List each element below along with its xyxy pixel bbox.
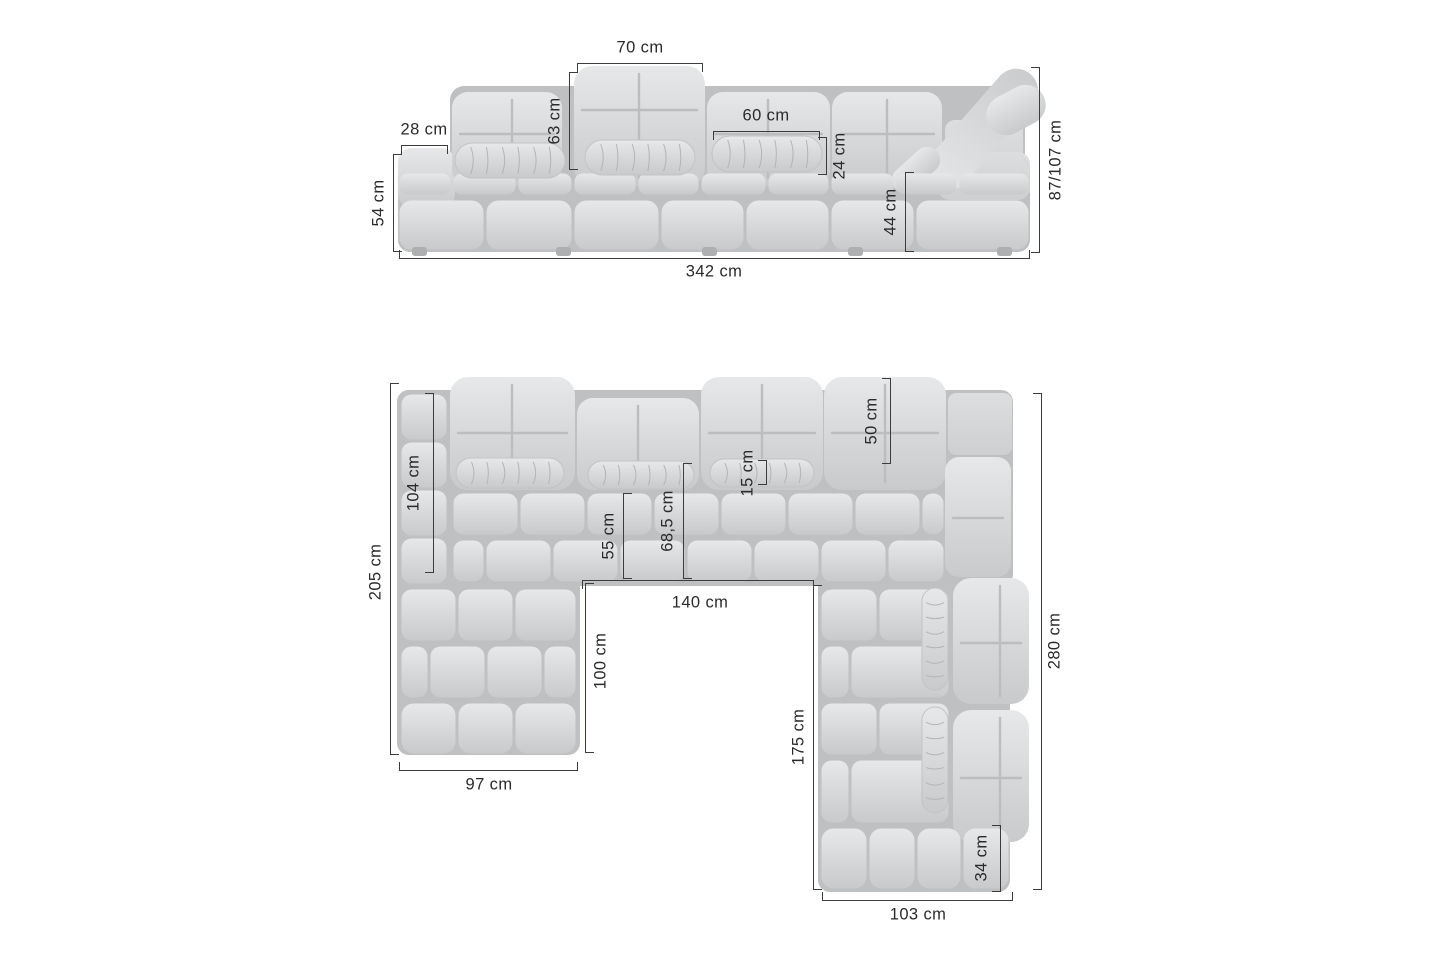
label-seat-depth-with-bolster: 68,5 cm bbox=[659, 490, 678, 552]
label-left-chaise-width: 97 cm bbox=[466, 776, 513, 795]
bracket-total-height bbox=[1031, 67, 1040, 253]
label-inner-left-length: 100 cm bbox=[592, 633, 611, 690]
label-left-backrest-depth: 104 cm bbox=[405, 455, 424, 512]
label-corner-end-depth: 34 cm bbox=[973, 835, 992, 882]
bracket-left-side-length bbox=[390, 383, 399, 755]
label-total-height: 87/107 cm bbox=[1047, 120, 1066, 201]
bracket-right-backrest-depth bbox=[882, 378, 891, 464]
label-left-side-length: 205 cm bbox=[367, 544, 386, 601]
label-headrest-width: 70 cm bbox=[617, 39, 664, 58]
bracket-backrest-height bbox=[569, 72, 578, 170]
bracket-corner-end-depth bbox=[992, 825, 1001, 892]
bracket-left-backrest-depth bbox=[425, 393, 434, 573]
bracket-cushion-width bbox=[713, 131, 820, 140]
label-total-width: 342 cm bbox=[686, 263, 743, 282]
label-bolster-depth: 15 cm bbox=[739, 450, 758, 497]
label-left-armrest-width: 28 cm bbox=[401, 121, 448, 140]
label-right-backrest-depth: 50 cm bbox=[863, 398, 882, 445]
label-right-side-length: 280 cm bbox=[1046, 613, 1065, 670]
label-inner-width: 140 cm bbox=[672, 594, 729, 613]
sofa-illustration bbox=[0, 0, 1445, 963]
bracket-left-chaise-width bbox=[399, 762, 578, 771]
label-cushion-height: 24 cm bbox=[831, 133, 850, 180]
bracket-right-side-length bbox=[1033, 393, 1042, 890]
label-seat-height: 44 cm bbox=[882, 189, 901, 236]
bracket-headrest-width bbox=[577, 63, 703, 72]
bracket-inner-right-length bbox=[813, 585, 822, 890]
label-cushion-width: 60 cm bbox=[743, 107, 790, 126]
bracket-inner-width bbox=[582, 580, 814, 589]
label-seat-depth: 55 cm bbox=[600, 513, 619, 560]
label-backrest-height: 63 cm bbox=[546, 98, 565, 145]
bracket-bolster-depth bbox=[758, 460, 767, 485]
bracket-armrest-height bbox=[393, 154, 402, 252]
bracket-left-armrest-width bbox=[401, 145, 448, 154]
bracket-right-chaise-width bbox=[822, 892, 1013, 901]
label-right-chaise-width: 103 cm bbox=[890, 906, 947, 925]
bracket-seat-height bbox=[905, 172, 914, 252]
bracket-seat-depth bbox=[623, 493, 632, 579]
bracket-total-width bbox=[399, 250, 1030, 259]
bracket-cushion-height bbox=[818, 137, 827, 175]
dimension-diagram: 70 cm 28 cm 63 cm 60 cm 24 cm 54 cm 44 c… bbox=[0, 0, 1445, 963]
label-armrest-height: 54 cm bbox=[370, 180, 389, 227]
label-inner-right-length: 175 cm bbox=[790, 709, 809, 766]
bracket-seat-depth-with-bolster bbox=[683, 463, 692, 579]
